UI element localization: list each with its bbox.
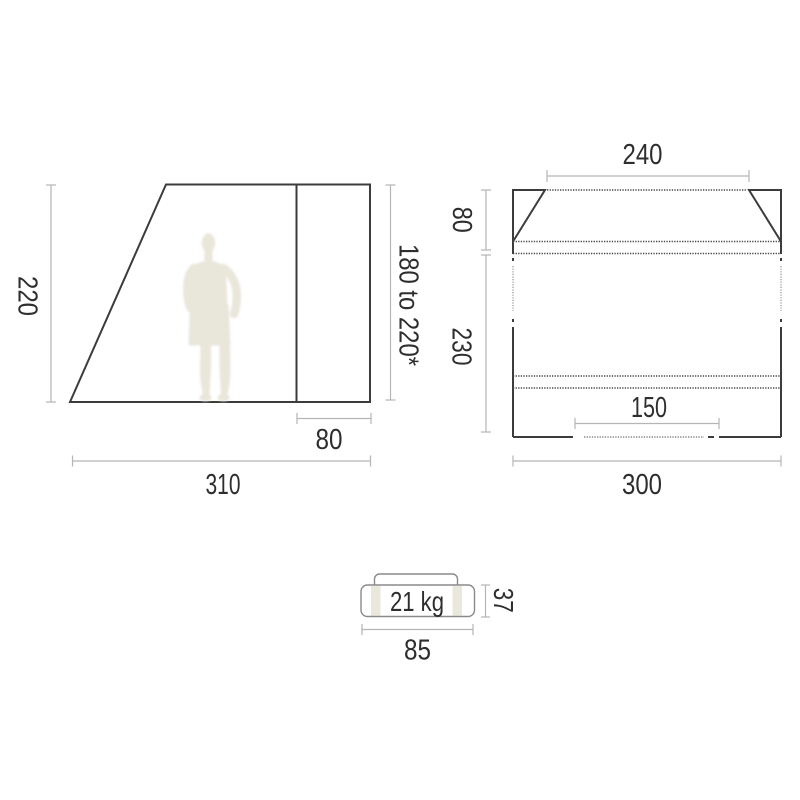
svg-text:150: 150 (631, 392, 667, 424)
svg-text:85: 85 (404, 635, 431, 667)
svg-text:21 kg: 21 kg (390, 586, 444, 617)
svg-text:230: 230 (447, 328, 478, 366)
svg-text:310: 310 (206, 469, 241, 501)
svg-text:37: 37 (488, 588, 519, 613)
svg-text:300: 300 (622, 469, 662, 501)
svg-text:80: 80 (316, 424, 343, 456)
svg-text:220: 220 (13, 276, 44, 316)
svg-text:240: 240 (623, 139, 663, 171)
svg-text:80: 80 (447, 207, 478, 233)
svg-text:180 to 220*: 180 to 220* (394, 244, 425, 366)
